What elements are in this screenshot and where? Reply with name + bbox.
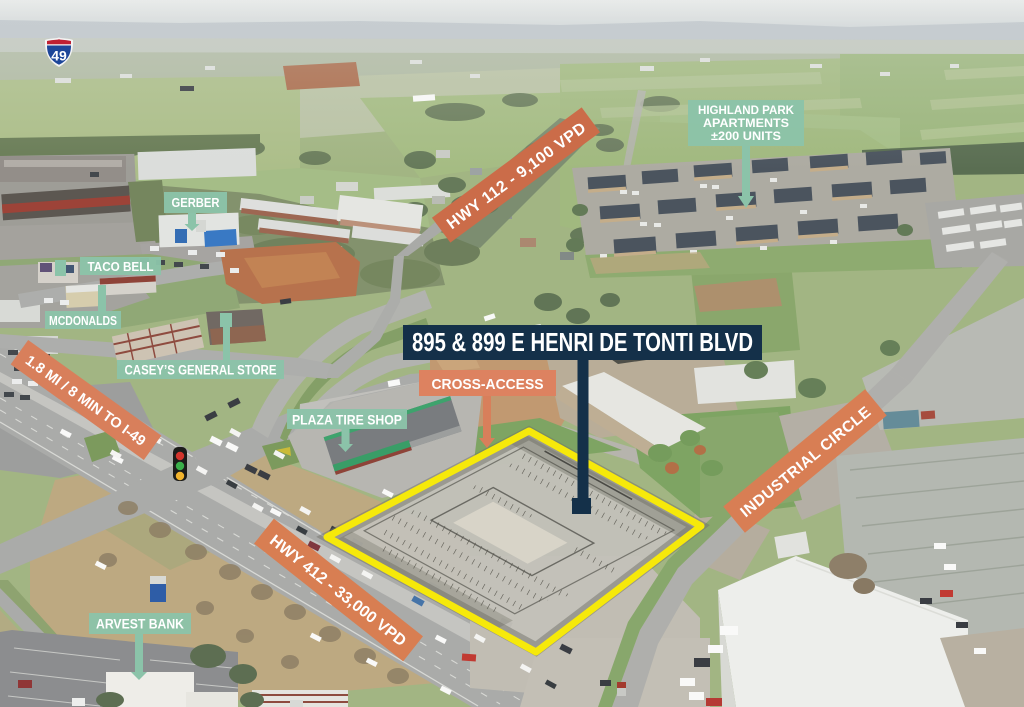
svg-text:MCDONALDS: MCDONALDS (49, 313, 117, 328)
svg-text:HIGHLAND PARK: HIGHLAND PARK (698, 105, 795, 117)
svg-text:APARTMENTS: APARTMENTS (703, 118, 789, 130)
svg-text:±200 UNITS: ±200 UNITS (711, 131, 781, 143)
svg-text:GERBER: GERBER (172, 195, 221, 210)
svg-text:49: 49 (51, 48, 67, 64)
svg-text:CROSS-ACCESS: CROSS-ACCESS (432, 376, 544, 393)
svg-text:PLAZA TIRE SHOP: PLAZA TIRE SHOP (292, 412, 402, 428)
svg-text:895 & 899 E HENRI DE TONTI BLV: 895 & 899 E HENRI DE TONTI BLVD (412, 327, 753, 357)
svg-text:ARVEST BANK: ARVEST BANK (96, 617, 184, 632)
svg-text:TACO BELL: TACO BELL (88, 259, 154, 274)
svg-text:CASEY’S GENERAL STORE: CASEY’S GENERAL STORE (125, 363, 277, 378)
